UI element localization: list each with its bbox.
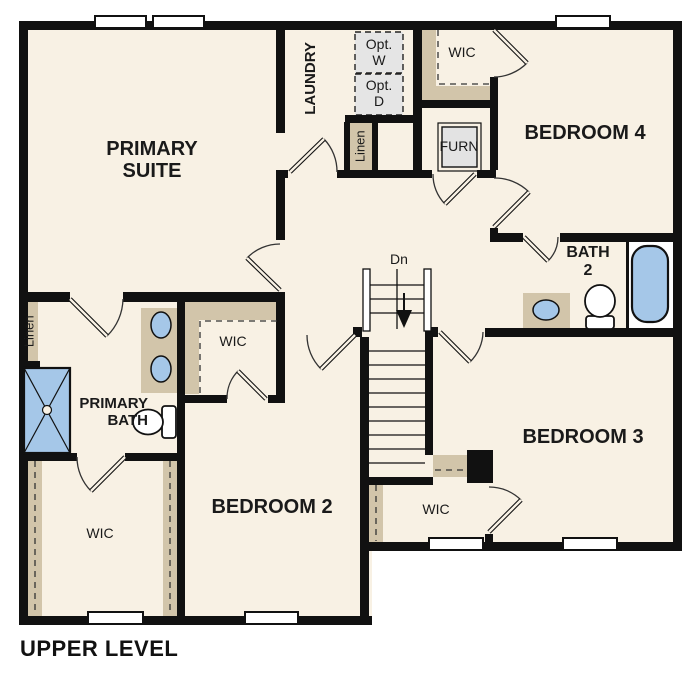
floor-plan: PRIMARY SUITE LAUNDRY Opt. W Opt. D WIC … — [0, 0, 687, 687]
plan-title: UPPER LEVEL — [20, 636, 178, 662]
linen-hall-closet — [350, 122, 372, 170]
tub-fixture — [632, 246, 668, 322]
window — [95, 16, 146, 28]
opt-washer-box — [355, 32, 403, 73]
toilet-fixture — [585, 285, 615, 329]
stair-rail — [424, 269, 431, 331]
furnace-box — [442, 127, 477, 167]
window — [88, 612, 143, 624]
toilet-fixture — [133, 406, 176, 438]
sink-fixture — [151, 312, 171, 338]
sink-fixture — [151, 356, 171, 382]
sink-fixture — [533, 300, 559, 320]
wic2-shelf — [185, 302, 199, 394]
window — [245, 612, 298, 624]
window — [563, 538, 617, 550]
opt-dryer-box — [355, 74, 403, 115]
window — [153, 16, 204, 28]
wic4-shelf — [422, 86, 490, 100]
shower-fixture — [24, 368, 70, 453]
stair-rail — [363, 269, 370, 331]
floor-area — [19, 21, 682, 625]
floor-plan-drawing — [0, 0, 687, 687]
window — [556, 16, 610, 28]
window — [429, 538, 483, 550]
wic3-shelf — [433, 455, 467, 477]
